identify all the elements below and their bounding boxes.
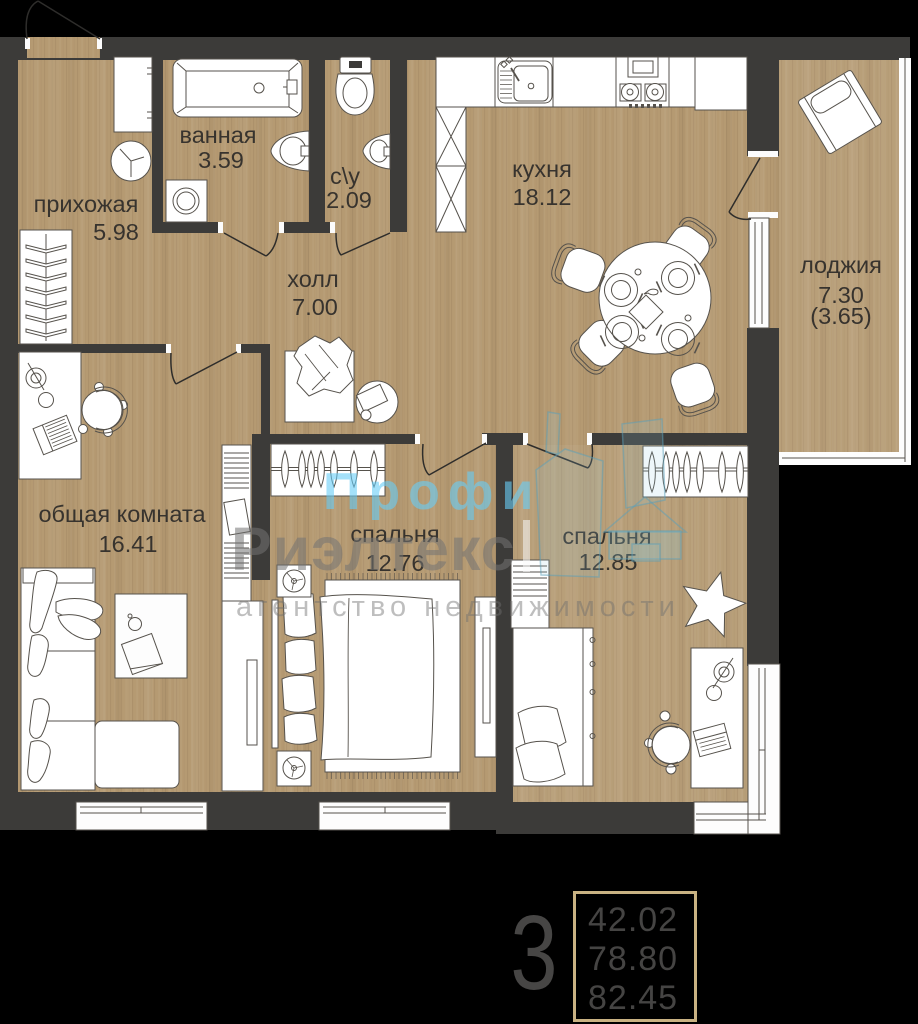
- svg-text:кухня: кухня: [512, 156, 572, 182]
- svg-text:Риэлтекс: Риэлтекс: [231, 515, 516, 583]
- svg-text:ванная: ванная: [179, 122, 256, 148]
- svg-text:5.98: 5.98: [93, 219, 139, 245]
- svg-text:7.00: 7.00: [292, 294, 338, 320]
- svg-text:с\у: с\у: [330, 163, 360, 189]
- svg-text:3: 3: [510, 894, 557, 1012]
- svg-text:82.45: 82.45: [588, 979, 678, 1017]
- svg-text:прихожая: прихожая: [34, 191, 139, 217]
- svg-text:78.80: 78.80: [588, 940, 678, 978]
- svg-text:(3.65): (3.65): [810, 303, 871, 329]
- svg-text:лоджия: лоджия: [800, 252, 882, 278]
- svg-text:Профи: Профи: [323, 463, 541, 521]
- svg-text:18.12: 18.12: [513, 184, 572, 210]
- svg-text:агентство недвижимости: агентство недвижимости: [236, 591, 680, 623]
- svg-text:2.09: 2.09: [326, 187, 372, 213]
- svg-text:3.59: 3.59: [198, 147, 244, 173]
- svg-text:общая комната: общая комната: [38, 501, 206, 527]
- svg-text:42.02: 42.02: [588, 901, 678, 939]
- svg-text:16.41: 16.41: [99, 531, 158, 557]
- svg-text:холл: холл: [287, 266, 338, 292]
